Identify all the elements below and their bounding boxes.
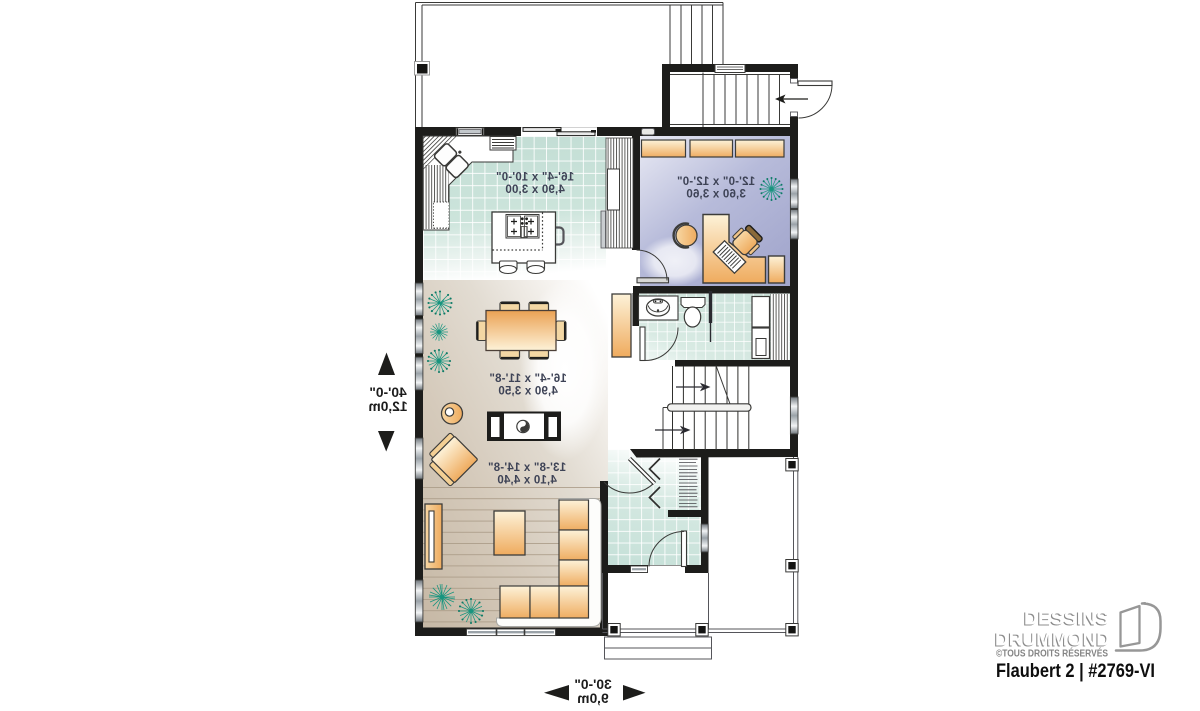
- svg-text:©TOUS DROITS RÉSERVÉS: ©TOUS DROITS RÉSERVÉS: [996, 647, 1108, 660]
- svg-text:30'-0": 30'-0": [574, 677, 611, 692]
- svg-text:4,90 x 3,00: 4,90 x 3,00: [505, 184, 565, 196]
- svg-text:4,10 x 4,40: 4,10 x 4,40: [497, 475, 557, 487]
- svg-text:16'-4" x 11'-8": 16'-4" x 11'-8": [489, 373, 567, 385]
- svg-text:40'-0": 40'-0": [369, 385, 406, 400]
- svg-text:DESSINS: DESSINS: [1024, 608, 1109, 629]
- svg-text:4,90 x 3,50: 4,90 x 3,50: [498, 386, 558, 398]
- svg-text:3,60 x 3,60: 3,60 x 3,60: [686, 189, 746, 201]
- svg-text:DRUMMOND: DRUMMOND: [995, 629, 1110, 650]
- svg-text:9,0m: 9,0m: [577, 691, 608, 706]
- svg-text:12'-0" x 12'-0": 12'-0" x 12'-0": [677, 176, 755, 188]
- svg-text:16'-4" x 10'-0": 16'-4" x 10'-0": [496, 172, 574, 184]
- svg-text:13'-8" x 14'-8": 13'-8" x 14'-8": [488, 462, 566, 474]
- svg-text:Flaubert 2 | #2769-VI: Flaubert 2 | #2769-VI: [996, 660, 1155, 682]
- svg-text:12,0m: 12,0m: [368, 399, 407, 414]
